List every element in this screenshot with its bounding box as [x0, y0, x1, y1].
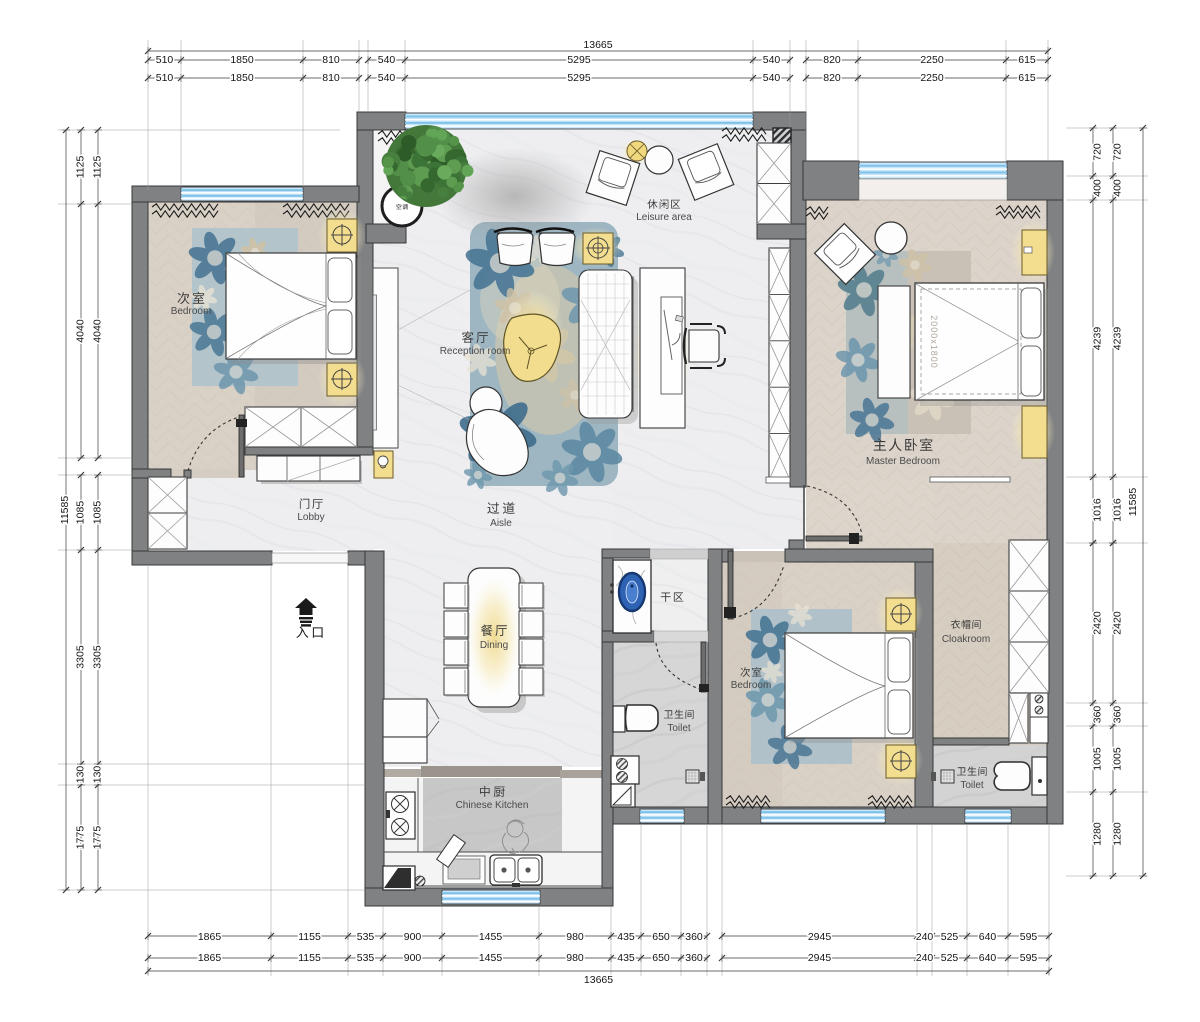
- svg-text:1865: 1865: [198, 952, 222, 964]
- svg-text:5295: 5295: [567, 72, 591, 84]
- svg-text:1005: 1005: [1092, 747, 1104, 771]
- svg-text:820: 820: [823, 72, 841, 84]
- svg-text:980: 980: [566, 931, 584, 943]
- svg-text:595: 595: [1020, 952, 1038, 964]
- svg-text:525: 525: [941, 931, 959, 943]
- svg-text:11585: 11585: [1127, 488, 1139, 517]
- svg-text:900: 900: [404, 931, 422, 943]
- svg-text:1125: 1125: [75, 156, 87, 179]
- svg-text:1280: 1280: [1092, 822, 1104, 846]
- svg-text:640: 640: [979, 931, 997, 943]
- svg-text:615: 615: [1018, 72, 1036, 84]
- svg-text:1005: 1005: [1112, 747, 1124, 771]
- svg-text:540: 540: [763, 54, 781, 66]
- svg-text:Lobby: Lobby: [297, 512, 324, 523]
- svg-text:240: 240: [916, 952, 934, 964]
- svg-text:130: 130: [75, 766, 87, 784]
- svg-text:525: 525: [941, 952, 959, 964]
- svg-text:1850: 1850: [230, 54, 254, 66]
- svg-text:360: 360: [685, 931, 703, 943]
- svg-text:4239: 4239: [1112, 327, 1124, 351]
- svg-text:400: 400: [1092, 179, 1104, 197]
- svg-text:3305: 3305: [75, 645, 87, 669]
- svg-text:2000x1800: 2000x1800: [929, 315, 939, 369]
- svg-text:1016: 1016: [1092, 498, 1104, 522]
- svg-text:Cloakroom: Cloakroom: [942, 634, 990, 645]
- svg-text:5295: 5295: [567, 54, 591, 66]
- svg-text:1775: 1775: [75, 826, 87, 850]
- svg-text:2945: 2945: [808, 952, 832, 964]
- svg-text:Dining: Dining: [480, 640, 508, 651]
- svg-text:1016: 1016: [1112, 498, 1124, 522]
- svg-text:980: 980: [566, 952, 584, 964]
- svg-text:240: 240: [916, 931, 934, 943]
- svg-text:2250: 2250: [920, 54, 944, 66]
- svg-text:435: 435: [617, 952, 635, 964]
- svg-text:810: 810: [322, 54, 340, 66]
- svg-text:540: 540: [378, 72, 396, 84]
- svg-text:1455: 1455: [479, 952, 503, 964]
- svg-text:640: 640: [979, 952, 997, 964]
- svg-text:1850: 1850: [230, 72, 254, 84]
- svg-text:2945: 2945: [808, 931, 832, 943]
- svg-text:2420: 2420: [1112, 611, 1124, 635]
- svg-text:720: 720: [1112, 143, 1124, 161]
- svg-text:3305: 3305: [92, 645, 104, 669]
- svg-text:Leisure area: Leisure area: [636, 212, 692, 223]
- svg-text:535: 535: [357, 931, 375, 943]
- svg-text:595: 595: [1020, 931, 1038, 943]
- svg-text:810: 810: [322, 72, 340, 84]
- svg-text:Toilet: Toilet: [960, 780, 984, 791]
- svg-text:650: 650: [652, 931, 670, 943]
- svg-text:4239: 4239: [1092, 327, 1104, 351]
- svg-text:Master Bedroom: Master Bedroom: [866, 456, 940, 467]
- svg-text:1085: 1085: [92, 501, 104, 525]
- svg-text:4040: 4040: [75, 319, 87, 343]
- svg-text:1455: 1455: [479, 931, 503, 943]
- svg-text:Reception room: Reception room: [440, 346, 511, 357]
- svg-text:1155: 1155: [298, 931, 321, 943]
- svg-text:Bedroom: Bedroom: [171, 306, 212, 317]
- svg-text:Chinese Kitchen: Chinese Kitchen: [456, 800, 529, 811]
- svg-text:13665: 13665: [584, 974, 613, 986]
- svg-text:540: 540: [763, 72, 781, 84]
- svg-text:720: 720: [1092, 143, 1104, 161]
- svg-text:13665: 13665: [583, 39, 612, 51]
- svg-text:Toilet: Toilet: [667, 723, 691, 734]
- svg-text:Bedroom: Bedroom: [731, 680, 772, 691]
- svg-text:1280: 1280: [1112, 822, 1124, 846]
- svg-text:435: 435: [617, 931, 635, 943]
- svg-text:510: 510: [156, 72, 174, 84]
- svg-text:540: 540: [378, 54, 396, 66]
- svg-text:130: 130: [92, 766, 104, 784]
- svg-text:11585: 11585: [59, 496, 71, 525]
- svg-text:615: 615: [1018, 54, 1036, 66]
- svg-text:1865: 1865: [198, 931, 222, 943]
- svg-text:650: 650: [652, 952, 670, 964]
- svg-text:535: 535: [357, 952, 375, 964]
- svg-text:2250: 2250: [920, 72, 944, 84]
- svg-text:1085: 1085: [75, 501, 87, 525]
- svg-text:510: 510: [156, 54, 174, 66]
- svg-text:4040: 4040: [92, 319, 104, 343]
- svg-text:2420: 2420: [1092, 611, 1104, 635]
- svg-text:400: 400: [1112, 179, 1124, 197]
- svg-text:360: 360: [1112, 706, 1124, 724]
- svg-text:900: 900: [404, 952, 422, 964]
- svg-text:1125: 1125: [92, 156, 104, 179]
- svg-text:820: 820: [823, 54, 841, 66]
- svg-text:Aisle: Aisle: [490, 518, 512, 529]
- svg-text:360: 360: [685, 952, 703, 964]
- svg-text:360: 360: [1092, 706, 1104, 724]
- svg-text:1155: 1155: [298, 952, 321, 964]
- svg-text:1775: 1775: [92, 826, 104, 850]
